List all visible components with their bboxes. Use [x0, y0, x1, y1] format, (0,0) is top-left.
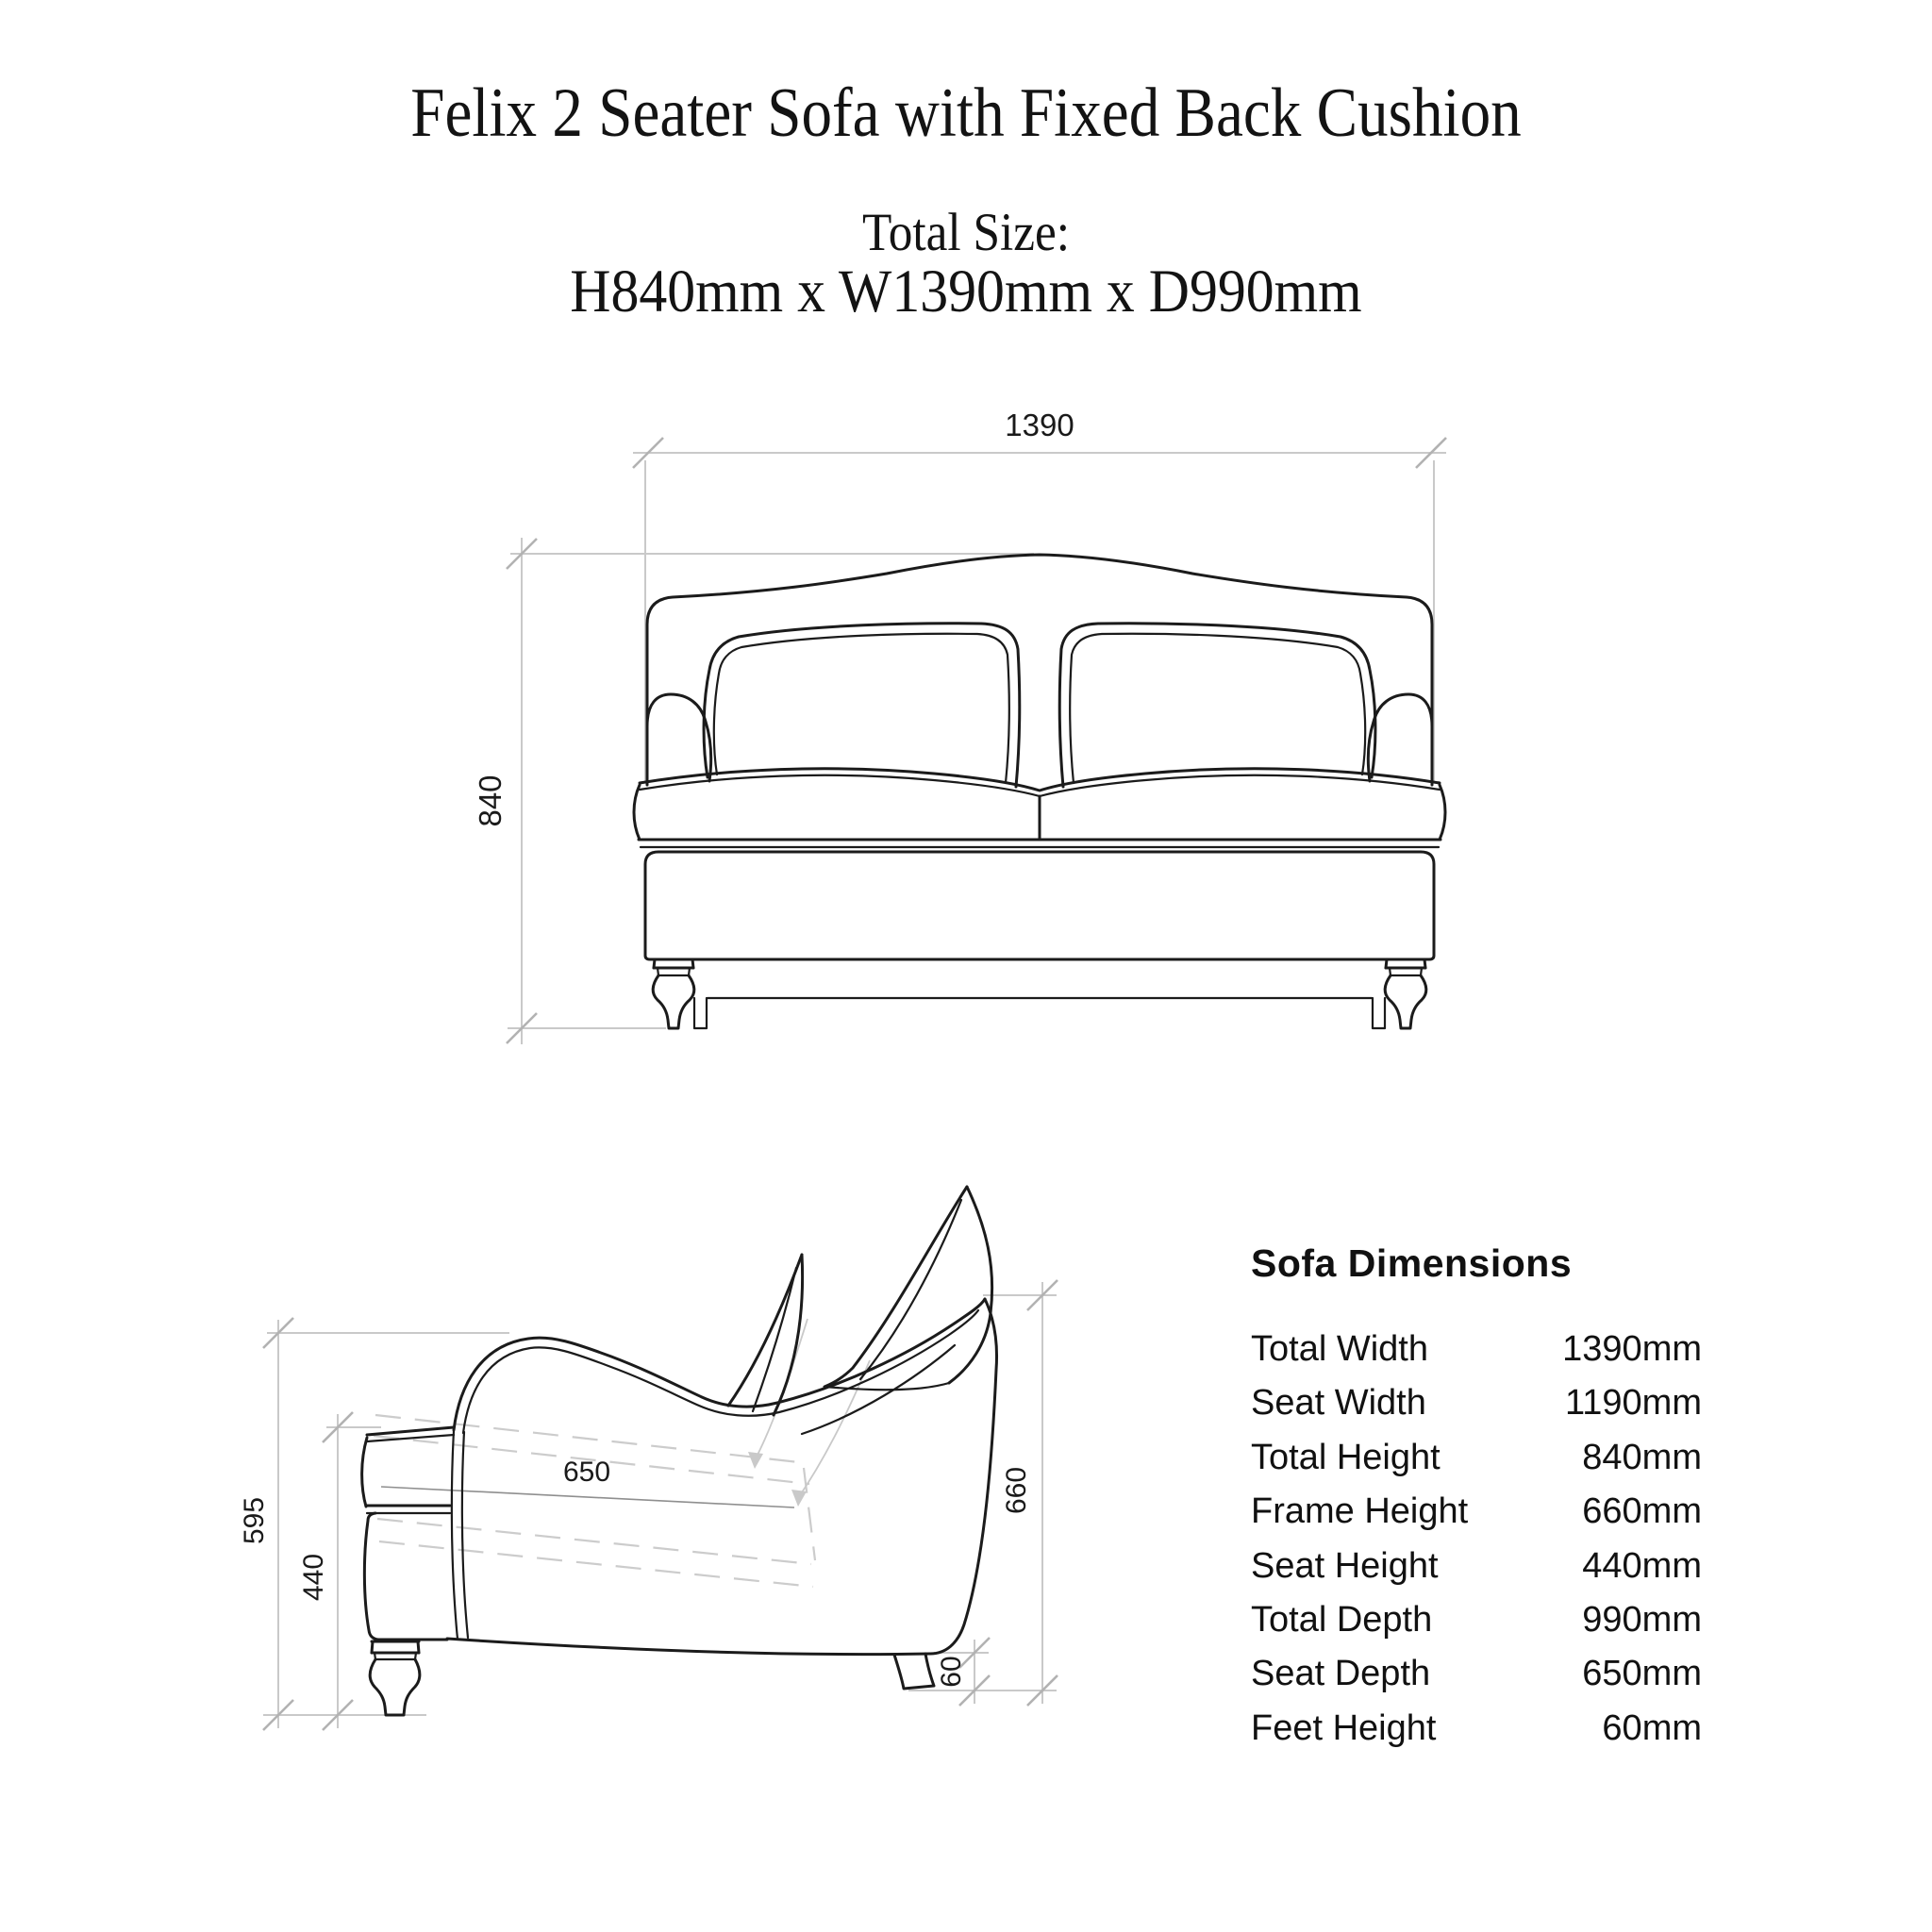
table-row-seat-depth: Seat Depth 650mm: [1251, 1654, 1702, 1707]
table-row-total-depth: Total Depth 990mm: [1251, 1600, 1702, 1654]
side-front-leg: [370, 1641, 420, 1715]
front-right-leg: [1385, 959, 1426, 1028]
dimension-label: Frame Height: [1251, 1491, 1468, 1532]
dimension-value: 60mm: [1602, 1708, 1702, 1749]
side-seat-depth-dim-label: 650: [563, 1457, 610, 1488]
dimensions-table: Sofa Dimensions Total Width 1390mm Seat …: [1251, 1241, 1702, 1762]
front-view-drawing: 1390 840: [473, 408, 1446, 1044]
dimension-label: Total Height: [1251, 1438, 1441, 1478]
dimension-value: 440mm: [1582, 1546, 1702, 1587]
dimension-label: Seat Depth: [1251, 1654, 1430, 1694]
table-row-seat-height: Seat Height 440mm: [1251, 1546, 1702, 1600]
table-row-seat-width: Seat Width 1190mm: [1251, 1383, 1702, 1437]
side-view-drawing: 595 440 650 660 60: [239, 1187, 1058, 1730]
dimension-value: 1190mm: [1565, 1383, 1702, 1424]
table-row-frame-height: Frame Height 660mm: [1251, 1491, 1702, 1545]
sofa-front-outline: [634, 555, 1445, 1028]
side-seat-height-dim-label: 440: [298, 1554, 329, 1601]
dimension-value: 1390mm: [1562, 1329, 1702, 1370]
sofa-side-outline: [362, 1187, 997, 1715]
dimension-label: Seat Width: [1251, 1383, 1426, 1424]
dimension-value: 840mm: [1582, 1438, 1702, 1478]
dimension-label: Feet Height: [1251, 1708, 1436, 1749]
dimension-value: 650mm: [1582, 1654, 1702, 1694]
side-arm-height-dim-label: 595: [239, 1497, 270, 1544]
hidden-seat-lines: [374, 1415, 815, 1587]
dimensions-table-heading: Sofa Dimensions: [1251, 1241, 1702, 1286]
table-row-feet-height: Feet Height 60mm: [1251, 1708, 1702, 1762]
side-feet-height-dim-label: 60: [936, 1656, 967, 1687]
spec-sheet: Felix 2 Seater Sofa with Fixed Back Cush…: [0, 0, 1932, 1932]
table-row-total-height: Total Height 840mm: [1251, 1438, 1702, 1491]
table-row-total-width: Total Width 1390mm: [1251, 1329, 1702, 1383]
front-left-leg: [653, 959, 694, 1028]
dimension-label: Seat Height: [1251, 1546, 1439, 1587]
dimension-label: Total Width: [1251, 1329, 1428, 1370]
side-frame-height-dim-label: 660: [1001, 1467, 1032, 1514]
dimension-value: 660mm: [1582, 1491, 1702, 1532]
front-height-dim-label: 840: [473, 774, 508, 826]
dimension-label: Total Depth: [1251, 1600, 1432, 1641]
front-width-dim-label: 1390: [1005, 408, 1074, 442]
dimension-value: 990mm: [1582, 1600, 1702, 1641]
